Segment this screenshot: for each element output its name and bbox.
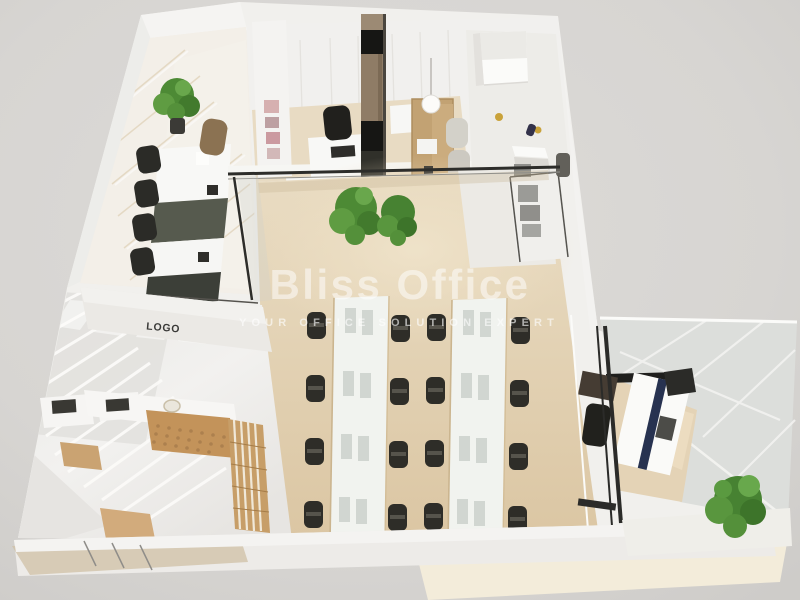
svg-text:YOUR OFFICE SOLUTION EXPERT: YOUR OFFICE SOLUTION EXPERT <box>239 317 559 329</box>
svg-text:Bliss Office: Bliss Office <box>269 261 530 308</box>
